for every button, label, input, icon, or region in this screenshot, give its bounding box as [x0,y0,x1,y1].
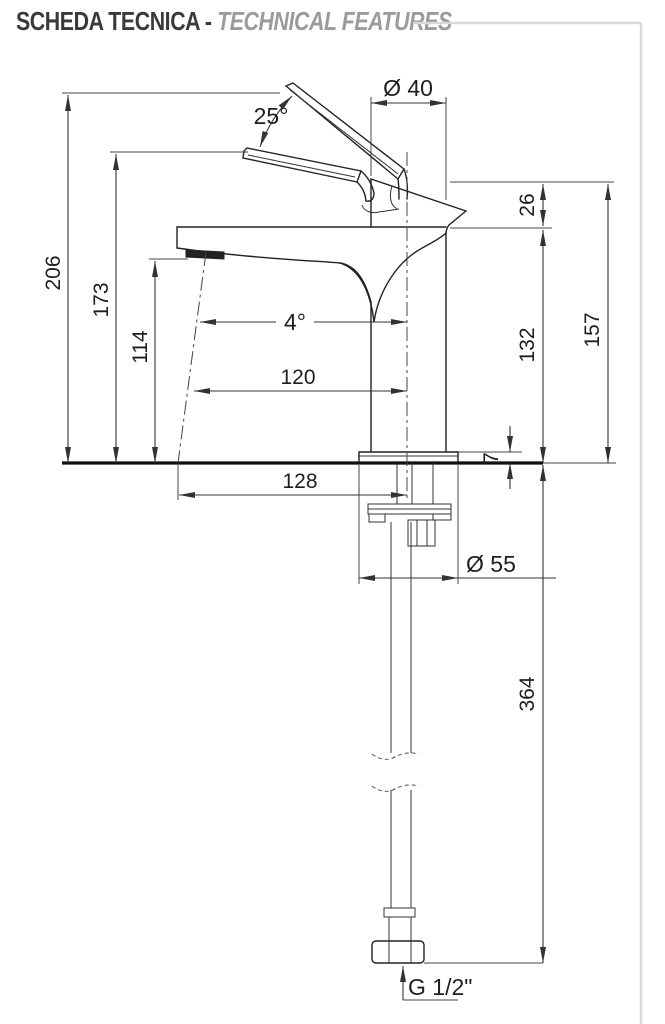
dim-height-total-label: 206 [42,255,65,290]
dim-height-body: 157 [581,184,608,463]
dim-thread: G 1/2" [403,966,472,1000]
dim-base-diameter: Ø 55 [359,465,556,584]
dim-height-spout: 132 [516,230,543,463]
dim-base-plate-thickness-label: 7 [480,452,503,464]
body-top [371,179,466,234]
flexible-hose [372,522,424,963]
dim-body-diameter: Ø 40 [371,75,446,200]
frame-border [413,23,641,1024]
dim-height-spout-label: 132 [516,327,539,362]
spout [177,227,446,322]
technical-drawing: 206 173 114 25° Ø 40 [0,0,665,1024]
water-stream-centerline [178,252,206,463]
dim-height-handle-open-label: 173 [90,282,113,317]
dim-hose-length: 364 [424,465,543,963]
dim-handle-angle: 25° [254,96,292,147]
dim-reach-base: 128 [178,465,407,500]
page: { "header": { "title_it": "SCHEDA TECNIC… [0,0,665,1024]
dim-base-diameter-label: Ø 55 [466,551,516,577]
hose-break-upper [372,753,419,759]
dim-reach-base-label: 128 [282,470,317,493]
hose-end-nut [372,941,424,963]
dim-height-total: 206 [42,93,280,463]
dim-reach-spout-label: 120 [280,366,315,389]
dim-handle-angle-label: 25° [254,103,289,129]
dim-stream-angle-label: 4° [284,309,306,335]
dim-height-aerator: 114 [129,259,188,463]
hose-break-lower [372,785,419,791]
dim-hose-length-label: 364 [516,676,539,711]
fixing-hardware [368,463,451,546]
dim-spout-to-top-label: 26 [516,193,539,216]
handle-open [286,83,407,209]
dimension-annotations: 206 173 114 25° Ø 40 [42,75,614,1000]
dim-reach-spout: 120 [194,366,407,391]
dim-height-body-label: 157 [581,312,604,347]
dim-base-plate-thickness: 7 [458,426,522,489]
body-column [371,179,446,452]
dim-height-handle-open: 173 [90,152,248,463]
base-plate [359,452,458,463]
dim-spout-to-top: 26 [450,182,614,228]
dim-thread-label: G 1/2" [408,974,472,1000]
dim-body-diameter-label: Ø 40 [383,75,433,101]
dim-height-aerator-label: 114 [129,330,152,364]
